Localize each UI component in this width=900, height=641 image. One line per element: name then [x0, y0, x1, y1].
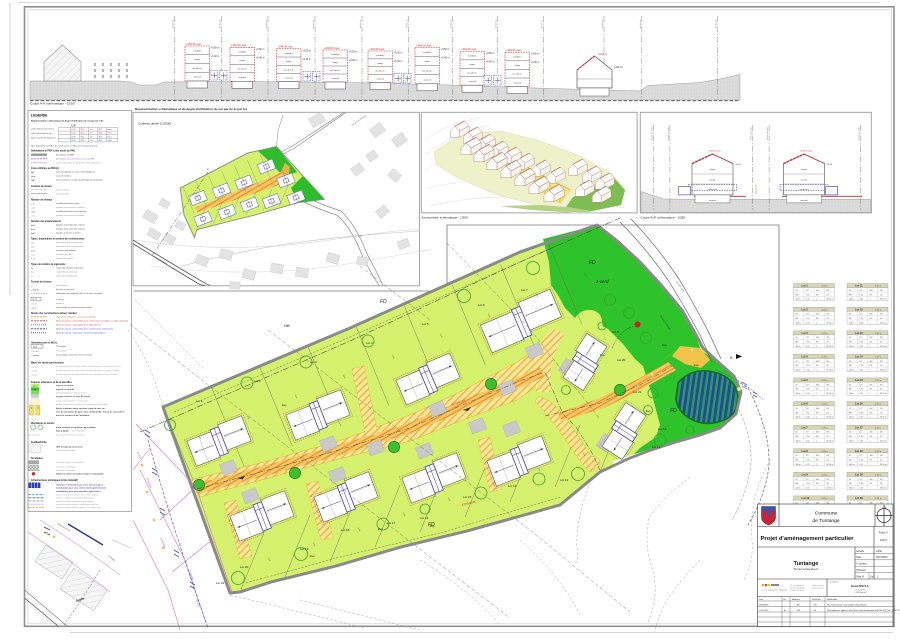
svg-text:Lot 12: Lot 12 — [855, 307, 863, 311]
svg-text:réseau éclairage public souter: réseau éclairage public souterrain (?) r… — [56, 506, 101, 509]
svg-text:combles: combles — [376, 55, 385, 57]
svg-text:Lot 5: Lot 5 — [422, 322, 429, 326]
svg-text:combles: combles — [285, 53, 294, 55]
svg-text:28.10 m: 28.10 m — [826, 346, 833, 348]
svg-text:limite lot: limite lot — [714, 20, 717, 28]
svg-text:28.10 m: 28.10 m — [826, 393, 833, 395]
svg-text:460: 460 — [816, 314, 819, 316]
svg-text:infiltration/rigole et station: infiltration/rigole et stationnement — [56, 392, 87, 395]
svg-text:étage: étage — [801, 168, 807, 171]
svg-text:mur de soutènement à construir: mur de soutènement à construire — [56, 433, 86, 436]
svg-text:1 Re: 1 Re — [859, 412, 863, 414]
svg-text:étage: étage — [515, 64, 521, 67]
svg-text:+ niveau: + niveau — [31, 355, 40, 357]
svg-text:zone soumise à un plan d'aména: zone soumise à un plan d'aménagement par… — [56, 179, 103, 182]
svg-text:8%: 8% — [816, 483, 819, 485]
svg-text:2%: 2% — [880, 436, 883, 438]
svg-text:+6.40: +6.40 — [735, 164, 741, 166]
svg-text:8%: 8% — [816, 294, 819, 296]
svg-text:03: 03 — [849, 337, 851, 339]
svg-text:500 m: 500 m — [849, 487, 855, 489]
svg-text:rez-de-: rez-de- — [709, 179, 716, 182]
svg-text:5.23 a: 5.23 a — [875, 357, 882, 359]
svg-text:Lot 1: Lot 1 — [802, 284, 809, 288]
svg-text:HB: HB — [284, 323, 290, 328]
svg-text:17.02.2017: 17.02.2017 — [759, 610, 768, 612]
svg-text:5.23 a: 5.23 a — [875, 333, 882, 335]
svg-text:FD: FD — [670, 408, 677, 414]
svg-text:1/250: 1/250 — [876, 551, 882, 553]
svg-text:Lot 15: Lot 15 — [855, 378, 863, 382]
svg-text:z-verd: z-verd — [595, 279, 609, 284]
svg-text:Modification: Modification — [827, 598, 837, 601]
svg-text:Lot 6: Lot 6 — [478, 303, 485, 307]
svg-text:500 m: 500 m — [849, 322, 855, 324]
svg-text:Représentation schématique et: Représentation schématique et du degré d… — [135, 107, 247, 111]
svg-text:5.23 a: 5.23 a — [822, 451, 829, 453]
svg-text:127: 127 — [859, 314, 862, 316]
svg-text:haie projetée: haie projetée — [56, 429, 70, 432]
svg-text:les bornages des chemins et de: les bornages des chemins et des voies de… — [56, 365, 121, 368]
svg-text:étage: étage — [710, 168, 716, 171]
svg-text:391: 391 — [880, 384, 883, 386]
svg-text:limite de surface constructibl: limite de surface constructible pour con… — [56, 320, 128, 323]
svg-text:5.23 a: 5.23 a — [875, 309, 882, 311]
svg-text:rez-de-ch.: rez-de-ch. — [237, 68, 247, 71]
svg-text:1 Re: 1 Re — [859, 483, 863, 485]
svg-text:2%: 2% — [880, 318, 883, 320]
svg-text:8%: 8% — [870, 342, 873, 344]
svg-text:FD: FD — [428, 522, 435, 528]
svg-text:Lot 19: Lot 19 — [855, 473, 863, 477]
svg-text:391: 391 — [826, 361, 829, 363]
svg-text:460: 460 — [816, 479, 819, 481]
svg-text:Lot 9: Lot 9 — [802, 473, 809, 477]
svg-text:niveau dalle au plancher point: niveau dalle au plancher point corrimué — [56, 354, 93, 357]
svg-text:1: 1 — [870, 299, 871, 301]
svg-text:Lot 22: Lot 22 — [216, 581, 225, 585]
svg-text:1 Re: 1 Re — [859, 436, 863, 438]
svg-text:5.23 a: 5.23 a — [875, 451, 882, 453]
svg-text:1: 1 — [816, 369, 817, 371]
svg-text:"Bei den Gehaansbeem": "Bei den Gehaansbeem" — [793, 569, 818, 571]
svg-text:5.23 a: 5.23 a — [875, 475, 882, 477]
svg-text:8%: 8% — [816, 389, 819, 391]
svg-text:+344.00 max: +344.00 max — [231, 43, 247, 47]
svg-text:m1s: m1s — [31, 250, 35, 252]
svg-text:2%: 2% — [880, 483, 883, 485]
svg-text:combles: combles — [238, 52, 247, 54]
svg-text:14017: 14017 — [880, 538, 888, 542]
svg-text:8%: 8% — [870, 460, 873, 462]
svg-text:niveau rue: niveau rue — [756, 184, 758, 194]
svg-text:2%: 2% — [880, 294, 883, 296]
svg-text:I, II ..: I, II .. — [31, 203, 36, 205]
svg-text:+xx.xx: +xx.xx — [31, 366, 38, 368]
svg-text:Feuillus/friche: Feuillus/friche — [31, 442, 47, 444]
svg-text:+344.00 max: +344.00 max — [506, 48, 522, 52]
svg-text:0.35: 0.35 — [806, 346, 810, 348]
svg-text:500 m: 500 m — [849, 440, 855, 442]
svg-text:28.10 m: 28.10 m — [826, 440, 833, 442]
svg-text:Lot 13: Lot 13 — [560, 478, 569, 482]
svg-text:03: 03 — [796, 290, 798, 292]
svg-text:500 m: 500 m — [849, 393, 855, 395]
svg-text:combles: combles — [513, 57, 522, 59]
svg-text:1: 1 — [870, 393, 871, 395]
svg-text:Reculs des constructions (et/o: Reculs des constructions (et/ou) : bande… — [31, 312, 77, 315]
svg-text:Lot 21: Lot 21 — [633, 390, 642, 394]
svg-text:28.10 m: 28.10 m — [880, 393, 887, 395]
svg-text:03: 03 — [796, 361, 798, 363]
svg-text:28.10 m: 28.10 m — [880, 464, 887, 466]
svg-text:limite de surface constructibl: limite de surface constructible pour con… — [56, 328, 113, 331]
svg-text:canalisation pour eaux usées m: canalisation pour eaux usées mixtes (pré… — [56, 487, 106, 490]
svg-text:Lot 3: Lot 3 — [310, 360, 317, 364]
svg-text:haie charmille: haie charmille — [72, 430, 85, 432]
svg-text:L-7333 Steinsel: L-7333 Steinsel — [854, 591, 866, 594]
svg-text:aire de stationnement / accès: aire de stationnement / accès haut — [56, 400, 88, 403]
svg-text:GL: GL — [814, 610, 817, 612]
svg-text:2%: 2% — [826, 294, 829, 296]
svg-text:0.35: 0.35 — [859, 346, 863, 348]
svg-text:+xx: +xx — [33, 389, 36, 391]
svg-text:03: 03 — [849, 432, 851, 434]
svg-text:PAP: PAP — [31, 179, 36, 182]
svg-text:127: 127 — [806, 432, 809, 434]
svg-text:+1S..: +1S.. — [31, 211, 36, 213]
svg-text:TN projeté: TN projeté — [56, 345, 67, 348]
svg-text:mail@arcoarch.lu: mail@arcoarch.lu — [812, 585, 825, 587]
svg-text:voie de circulation de type «z: voie de circulation de type «zone réside… — [56, 411, 125, 414]
svg-text:+9.50 m: +9.50 m — [394, 52, 403, 55]
svg-text:1: 1 — [870, 322, 871, 324]
svg-text:1 Re: 1 Re — [859, 365, 863, 367]
svg-text:Servitudes: Servitudes — [31, 457, 43, 460]
svg-text:réseau électricité souterraine: réseau électricité souterraine (prévu/ex… — [56, 500, 94, 503]
svg-text:391: 391 — [880, 432, 883, 434]
svg-text:5.23 a: 5.23 a — [822, 309, 829, 311]
svg-text:Projet N°: Projet N° — [879, 532, 889, 535]
svg-text:rez-de-ch.: rez-de-ch. — [422, 69, 432, 72]
svg-text:soussol: soussol — [285, 78, 293, 80]
svg-text:Echelle: Echelle — [857, 551, 865, 553]
svg-text:8%: 8% — [816, 318, 819, 320]
svg-text:12, rue de Hollerich: 12, rue de Hollerich — [790, 585, 804, 587]
svg-text:Lot 2: Lot 2 — [254, 379, 261, 383]
svg-text:391: 391 — [880, 361, 883, 363]
svg-text:460: 460 — [870, 361, 873, 363]
svg-text:5.23 a: 5.23 a — [875, 380, 882, 382]
svg-text:1: 1 — [816, 440, 817, 442]
svg-text:Lot 16: Lot 16 — [420, 516, 429, 520]
svg-text:391: 391 — [880, 479, 883, 481]
svg-text:Courbes de niveau: Courbes de niveau — [31, 186, 52, 188]
svg-text:0.35: 0.35 — [859, 440, 863, 442]
svg-text:28.10 m: 28.10 m — [826, 322, 833, 324]
svg-text:1 Re: 1 Re — [806, 436, 810, 438]
svg-text:460: 460 — [816, 384, 819, 386]
svg-text:460: 460 — [870, 337, 873, 339]
svg-text:1 Re: 1 Re — [859, 460, 863, 462]
svg-text:28.10 m: 28.10 m — [880, 417, 887, 419]
svg-text:0.35: 0.35 — [806, 440, 810, 442]
svg-text:127: 127 — [859, 290, 862, 292]
svg-text:T +352 26 48 05 05: T +352 26 48 05 05 — [790, 590, 804, 592]
svg-text:limite lot: limite lot — [218, 20, 221, 28]
svg-text:limite parcelle: limite parcelle — [858, 126, 861, 140]
svg-text:Date: Date — [857, 556, 863, 559]
svg-text:limite lot: limite lot — [265, 20, 268, 28]
svg-text:surfaces: surfaces — [56, 302, 64, 305]
svg-text:Zones définies au PAG(s): Zones définies au PAG(s) — [31, 167, 59, 170]
svg-text:PM: PM — [797, 610, 800, 612]
svg-text:arbre à moyen et sur haute tig: arbre à moyen et sur haute tige à plante… — [56, 426, 96, 429]
svg-text:8%: 8% — [870, 318, 873, 320]
svg-text:Nombre de niveaux: Nombre de niveaux — [31, 200, 53, 202]
svg-text:type, dispositif en nombre de: type, dispositif en nombre de constructi… — [31, 145, 98, 148]
svg-text:délimitation du PAP: délimitation du PAP — [56, 154, 75, 157]
svg-text:Lot 18: Lot 18 — [341, 528, 350, 532]
svg-text:0.35: 0.35 — [859, 464, 863, 466]
svg-text:460: 460 — [870, 384, 873, 386]
svg-text:+6.40 m: +6.40 m — [441, 57, 450, 60]
svg-text:1: 1 — [816, 346, 817, 348]
svg-text:servitude de type "urbanisatio: servitude de type "urbanisation" — [56, 461, 84, 464]
svg-text:1: 1 — [870, 464, 871, 466]
svg-text:Altimétries (en m, NG-L): Altimétries (en m, NG-L) — [31, 342, 58, 345]
svg-text:étage: étage — [333, 61, 339, 64]
svg-text:limite lot: limite lot — [495, 20, 498, 28]
svg-text:limite lot: limite lot — [541, 20, 544, 28]
svg-text:Nombre des emplacements: Nombre des emplacements — [31, 220, 62, 223]
svg-text:servitude de passage: servitude de passage — [56, 469, 76, 472]
svg-text:Mayd' els reculé par fonctions: Mayd' els reculé par fonctions — [31, 362, 65, 365]
svg-text:limite lot: limite lot — [450, 20, 453, 28]
svg-text:Lib: Lib — [783, 599, 786, 601]
svg-text:8%: 8% — [870, 389, 873, 391]
svg-text:Lot 7: Lot 7 — [521, 288, 528, 292]
svg-text:soussol: soussol — [514, 82, 522, 84]
svg-text:127: 127 — [806, 314, 809, 316]
svg-text:391: 391 — [826, 408, 829, 410]
svg-text:Lot 6: Lot 6 — [802, 402, 809, 406]
svg-text:+344.00 max: +344.00 max — [416, 43, 432, 47]
svg-text:1: 1 — [816, 299, 817, 301]
svg-text:orientation principale du faît: orientation principale du faîte sur île … — [56, 292, 103, 295]
svg-text:Evp: Evp — [282, 403, 287, 407]
svg-text:réseau / conduites eau potable: réseau / conduites eau potable (prév./ex… — [56, 497, 95, 500]
svg-text:limite de surface construction: limite de surface construction soussol e… — [56, 332, 107, 335]
svg-text:0.35: 0.35 — [806, 299, 810, 301]
svg-text:Types, dispositions et nombre: Types, dispositions et nombre des constr… — [31, 238, 85, 241]
svg-text:5.23 a: 5.23 a — [875, 404, 882, 406]
svg-text:soussol: soussol — [469, 81, 477, 83]
svg-text:niveau dalle au plancher point: niveau dalle au plancher point corrimué — [56, 306, 93, 309]
svg-text:Lot 2: Lot 2 — [802, 307, 809, 311]
svg-text:étage: étage — [286, 60, 292, 63]
svg-text:28.10 m: 28.10 m — [826, 369, 833, 371]
svg-text:5.23 a: 5.23 a — [822, 380, 829, 382]
svg-text:s'agit mille du type unifamili: s'agit mille du type unifamilial — [56, 267, 83, 270]
svg-text:combles: combles — [423, 52, 432, 54]
svg-text:Lot 12: Lot 12 — [658, 427, 667, 431]
svg-text:391: 391 — [880, 455, 883, 457]
svg-text:limite parcelle: limite parcelle — [651, 126, 654, 140]
svg-text:500 m: 500 m — [796, 322, 802, 324]
svg-text:127: 127 — [859, 384, 862, 386]
svg-text:127: 127 — [859, 432, 862, 434]
svg-text:500 m: 500 m — [796, 346, 802, 348]
svg-text:chaussée: chaussée — [708, 189, 718, 191]
svg-text:de Tuntange: de Tuntange — [812, 518, 839, 524]
svg-text:limite parcelle: limite parcelle — [750, 126, 753, 140]
svg-text:1 Re: 1 Re — [859, 342, 863, 344]
svg-text:127: 127 — [859, 479, 862, 481]
svg-text:+344.00 max: +344.00 max — [186, 42, 202, 46]
svg-text:+9.50 m: +9.50 m — [256, 48, 265, 51]
svg-text:500 m: 500 m — [849, 464, 855, 466]
svg-text:8%: 8% — [816, 460, 819, 462]
svg-text:Lot 14: Lot 14 — [855, 355, 863, 359]
svg-text:si 30÷45: si 30÷45 — [31, 288, 40, 291]
svg-text:1 Re: 1 Re — [806, 342, 810, 344]
svg-text:TN exist.: TN exist. — [31, 350, 40, 353]
svg-text:460: 460 — [816, 337, 819, 339]
svg-text:soussol: soussol — [800, 200, 808, 202]
svg-text:28.10 m: 28.10 m — [826, 487, 833, 489]
svg-text:127: 127 — [806, 384, 809, 386]
svg-text:équipes la position des voitur: équipes la position des voitures — [56, 224, 85, 227]
svg-text:460: 460 — [816, 455, 819, 457]
svg-text:terrain projeté: terrain projeté — [56, 193, 70, 196]
svg-text:2%: 2% — [826, 365, 829, 367]
svg-text:limite parcelle: limite parcelle — [667, 126, 670, 140]
svg-text:2%: 2% — [826, 389, 829, 391]
svg-text:+6.40 m: +6.40 m — [531, 61, 540, 64]
svg-text:+6.40 m: +6.40 m — [486, 60, 495, 63]
svg-text:1 Re: 1 Re — [859, 318, 863, 320]
svg-text:Espaces extérieurs en île et p: Espaces extérieurs en île et parcelles — [31, 381, 72, 384]
svg-text:0.35: 0.35 — [806, 393, 810, 395]
svg-text:TP: TP — [358, 234, 362, 238]
svg-text:1 Re: 1 Re — [806, 318, 810, 320]
svg-text:28.10 m: 28.10 m — [826, 299, 833, 301]
svg-text:a r c o architecture + ur: a r c o architecture + urbanisme — [762, 589, 787, 592]
svg-text:+9.50 m: +9.50 m — [486, 52, 495, 55]
svg-text:Lot 20: Lot 20 — [855, 496, 863, 500]
svg-text:Contexte urbain (1/2500): Contexte urbain (1/2500) — [138, 122, 171, 126]
svg-text:bassin versant (eau, bassin de: bassin versant (eau, bassin de rétention… — [56, 493, 99, 496]
svg-text:391: 391 — [880, 408, 883, 410]
svg-text:0.35: 0.35 — [859, 369, 863, 371]
svg-text:1 Re: 1 Re — [806, 294, 810, 296]
svg-text:nombre de niveaux en combles: nombre de niveaux en combles — [56, 206, 85, 209]
svg-text:zone de verdure: zone de verdure — [56, 175, 72, 178]
svg-text:rez-de-ch.: rez-de-ch. — [192, 67, 202, 70]
svg-text:03: 03 — [796, 455, 798, 457]
svg-text:espace privé extérieur utile a: espace privé extérieur utile au v. (abor… — [56, 403, 108, 406]
svg-text:03: 03 — [796, 314, 798, 316]
svg-text:Plan initial soumis à la procé: Plan initial soumis à la procédure d'app… — [827, 603, 867, 606]
svg-text:1 Re: 1 Re — [859, 389, 863, 391]
svg-text:500 m: 500 m — [849, 417, 855, 419]
svg-text:réseau télécommunication soute: réseau télécommunication souterraine (pr… — [56, 503, 100, 506]
svg-text:les bornages périphériques des: les bornages périphériques des voies et … — [56, 373, 119, 376]
svg-text:canalisation pour eaux pluvial: canalisation pour eaux pluviales (prév./… — [56, 490, 101, 493]
svg-text:maisons jumelées: maisons jumelées — [56, 254, 73, 256]
svg-text:zones urbanisées ou destinées: zones urbanisées ou destinées à être urb… — [56, 162, 101, 165]
svg-text:127: 127 — [806, 479, 809, 481]
svg-text:500 m: 500 m — [849, 346, 855, 348]
svg-text:élément à mettre en évidence (: élément à mettre en évidence (arbre rema… — [56, 473, 104, 476]
svg-text:500 m: 500 m — [796, 417, 802, 419]
svg-text:+344.00 max: +344.00 max — [278, 45, 294, 49]
svg-text:Lot 14: Lot 14 — [508, 484, 517, 488]
svg-text:soussol: soussol — [194, 77, 202, 79]
svg-text:127: 127 — [859, 408, 862, 410]
svg-text:sous-traitant: sous-traitant — [829, 581, 839, 584]
svg-text:Lot 3: Lot 3 — [802, 331, 809, 335]
svg-text:+344.10: +344.10 — [614, 66, 623, 69]
svg-text:rez-de-ch.: rez-de-ch. — [467, 72, 477, 75]
svg-text:Représentation schématique du: Représentation schématique du degré d'ut… — [31, 120, 104, 123]
svg-text:460: 460 — [870, 455, 873, 457]
svg-text:5.23 a: 5.23 a — [875, 427, 882, 429]
svg-text:460: 460 — [870, 290, 873, 292]
svg-text:alignement obligatoire constru: alignement obligatoire construction faça… — [56, 316, 96, 319]
svg-text:391: 391 — [826, 455, 829, 457]
svg-text:2%: 2% — [826, 412, 829, 414]
svg-text:0.35: 0.35 — [859, 393, 863, 395]
svg-text:disposition de la construction: disposition de la construction — [56, 241, 84, 244]
svg-text:Infrastructures techniques (à: Infrastructures techniques (à titre indi… — [31, 479, 78, 482]
svg-text:0.35: 0.35 — [806, 322, 810, 324]
svg-text:500 m: 500 m — [849, 299, 855, 301]
svg-text:terrain existant: terrain existant — [56, 189, 70, 192]
svg-text:03: 03 — [849, 479, 851, 481]
svg-text:12a34: 12a34 — [31, 303, 38, 305]
svg-text:Lot 15: Lot 15 — [463, 495, 472, 499]
svg-text:s'agit mille du plex (2u): s'agit mille du plex (2u) — [56, 271, 77, 274]
svg-text:Plan N°: Plan N° — [857, 576, 865, 578]
svg-text:1: 1 — [816, 464, 817, 466]
svg-text:1: 1 — [816, 322, 817, 324]
svg-text:8%: 8% — [870, 436, 873, 438]
svg-text:03: 03 — [849, 314, 851, 316]
svg-text:étage: étage — [470, 63, 476, 66]
svg-text:nombre de niveaux pleins: nombre de niveaux pleins — [56, 202, 80, 205]
svg-text:2%: 2% — [826, 436, 829, 438]
svg-text:Lot 19: Lot 19 — [300, 547, 309, 551]
svg-text:127: 127 — [806, 337, 809, 339]
svg-text:+1ss..: +1ss.. — [31, 215, 37, 217]
svg-text:Modif par: Modif par — [792, 598, 800, 601]
svg-text:2%: 2% — [880, 412, 883, 414]
svg-text:n° du lot: n° du lot — [56, 298, 64, 301]
svg-text:1: 1 — [870, 417, 871, 419]
svg-text:1 Re: 1 Re — [806, 483, 810, 485]
svg-text:s'agit mille du type (3u): s'agit mille du type (3u) — [56, 275, 78, 278]
svg-text:391: 391 — [826, 384, 829, 386]
svg-text:+xx: +xx — [33, 385, 36, 387]
svg-text:m2s: m2s — [31, 254, 35, 256]
svg-text:étage: étage — [378, 62, 384, 65]
svg-text:rétention et évacuation par vo: rétention et évacuation par voies direct… — [56, 483, 103, 486]
svg-text:rez-de-: rez-de- — [801, 179, 808, 182]
svg-text:espace vert privé: espace vert privé — [56, 384, 74, 387]
svg-text:03: 03 — [849, 361, 851, 363]
